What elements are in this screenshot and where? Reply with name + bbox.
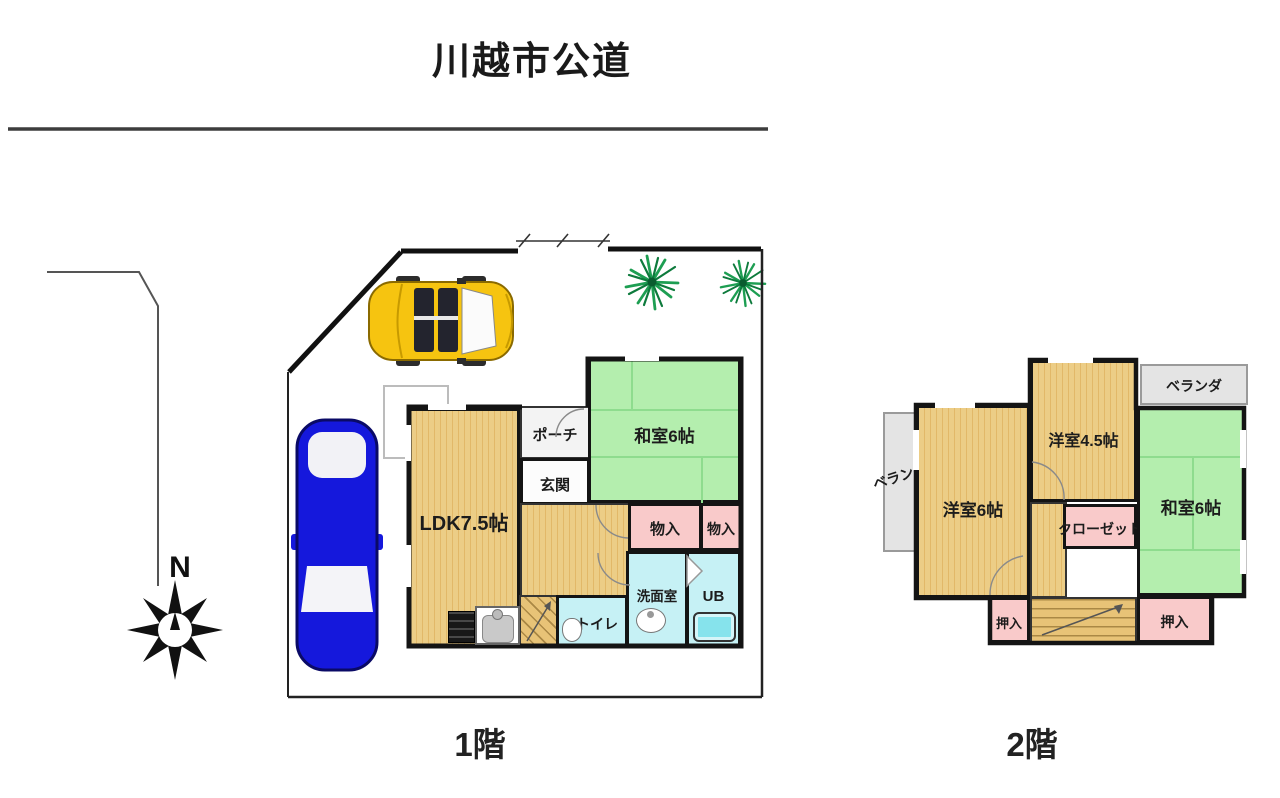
stairs-1f xyxy=(519,595,558,647)
room-label: 押入 xyxy=(1140,612,1209,632)
window xyxy=(625,355,659,361)
road-title: 川越市公道 xyxy=(382,30,682,85)
window xyxy=(1240,540,1246,574)
compass-north-label: N xyxy=(169,551,191,584)
room-western45-2f: 洋室4.5帖 xyxy=(1030,360,1137,502)
room-washitsu-2f: 和室6帖 xyxy=(1137,406,1245,596)
tatami-line xyxy=(701,456,703,506)
stairs-2f xyxy=(1030,597,1137,643)
room-label: 物入 xyxy=(703,519,739,539)
veranda-top-2f: ベランダ xyxy=(1140,364,1248,405)
bathtub-icon xyxy=(693,612,736,642)
washbasin-icon xyxy=(636,608,666,633)
room-label: クローゼット xyxy=(1054,519,1146,539)
site-boundary-diagonal xyxy=(289,252,401,372)
floor2-label: 2階 xyxy=(972,718,1092,766)
compass-needle xyxy=(170,612,180,630)
yellow-car-icon xyxy=(369,276,513,366)
window xyxy=(935,402,975,408)
compass-star-icon xyxy=(127,580,223,680)
stove-icon xyxy=(448,611,475,643)
room-oshiire1-2f: 押入 xyxy=(988,597,1030,643)
sink-icon xyxy=(475,606,520,645)
floorplan-scene: 川越市公道 xyxy=(0,0,1280,798)
tree-icon xyxy=(721,261,765,306)
tree-icon xyxy=(626,256,678,309)
room-label: 洗面室 xyxy=(629,585,685,605)
room-storage1-1f: 物入 xyxy=(628,503,702,551)
neighbor-boundary xyxy=(47,272,158,586)
room-label: 洋室4.5帖 xyxy=(1033,427,1134,451)
room-label: LDK7.5帖 xyxy=(411,507,517,536)
gate-symbol xyxy=(516,234,610,247)
room-label: ベランダ xyxy=(1142,376,1246,396)
stairs-arrow-icon xyxy=(1032,599,1135,641)
room-washitsu-1f: 和室6帖 xyxy=(588,358,741,503)
window xyxy=(428,404,466,410)
room-storage2-1f: 物入 xyxy=(700,503,742,551)
room-label: 押入 xyxy=(991,613,1027,632)
room-western6-2f: 洋室6帖 xyxy=(916,405,1030,598)
hallway-1f xyxy=(520,503,630,597)
hallway-2f xyxy=(1030,502,1067,598)
window xyxy=(405,545,411,587)
compass: N xyxy=(127,551,223,680)
window xyxy=(405,425,411,461)
room-label: 和室6帖 xyxy=(591,422,738,447)
room-closet-2f: クローゼット xyxy=(1063,504,1137,549)
room-label: ポーチ xyxy=(522,424,588,445)
floor1-label: 1階 xyxy=(420,718,540,766)
window xyxy=(913,430,919,470)
room-label: 玄関 xyxy=(523,474,587,495)
room-label: 和室6帖 xyxy=(1140,494,1242,519)
room-washroom-1f: 洗面室 xyxy=(626,551,688,647)
room-label: 洋室6帖 xyxy=(919,496,1027,521)
window xyxy=(1048,357,1093,363)
room-genkan-1f: 玄関 xyxy=(520,458,590,505)
room-oshiire2-2f: 押入 xyxy=(1137,596,1212,643)
stairs-arrow-icon xyxy=(521,597,556,645)
tatami-line xyxy=(591,409,738,411)
blue-car-icon xyxy=(291,420,383,670)
room-label: 物入 xyxy=(631,518,699,539)
tatami-line xyxy=(631,361,633,409)
tatami-line xyxy=(1140,549,1242,551)
tatami-line xyxy=(1140,456,1242,458)
toilet-icon xyxy=(562,618,582,642)
room-porch-1f: ポーチ xyxy=(520,406,590,459)
tatami-line xyxy=(591,456,738,458)
veranda-left-2f: ベランダ xyxy=(883,412,917,552)
window xyxy=(1240,430,1246,468)
room-label: UB xyxy=(689,588,738,605)
